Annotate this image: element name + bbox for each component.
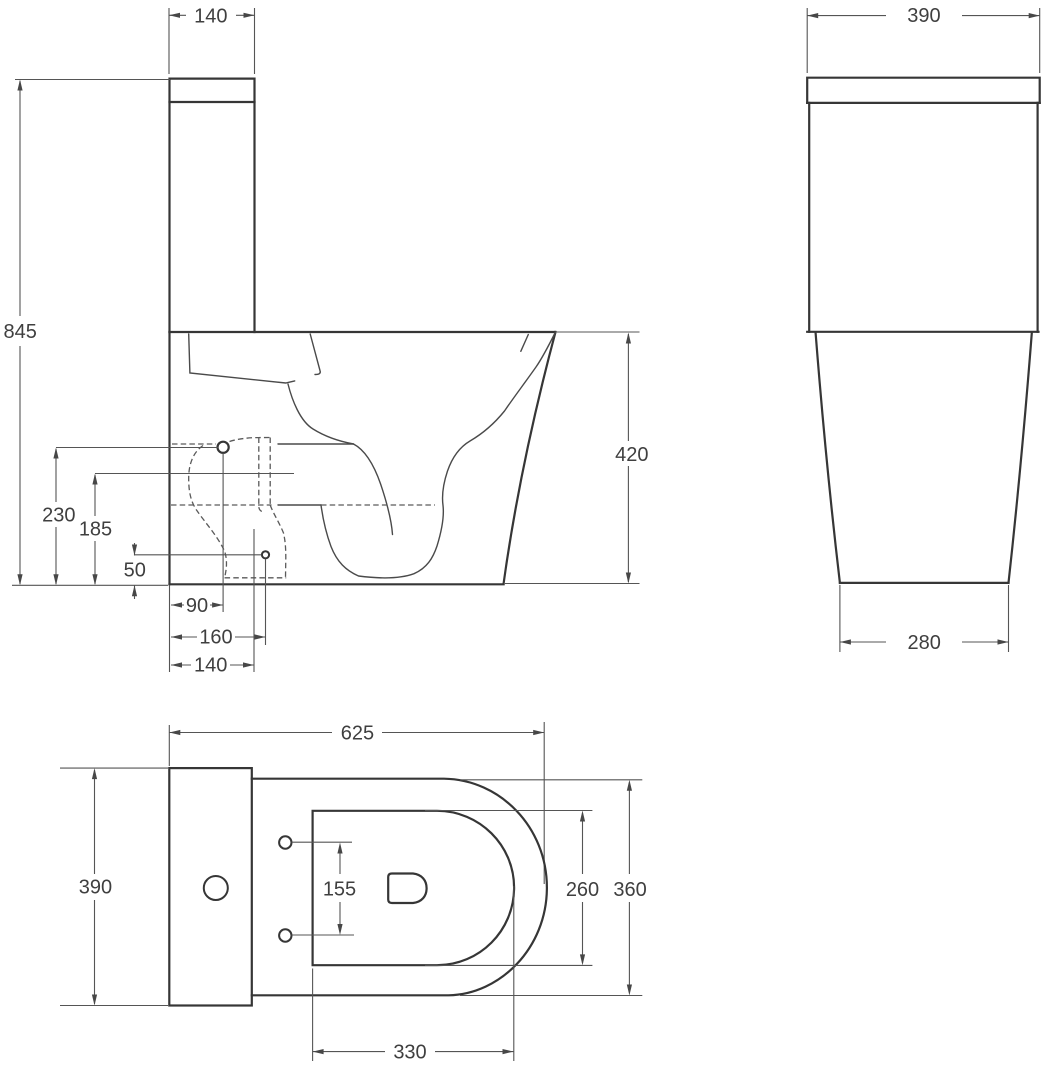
svg-text:390: 390 — [907, 5, 940, 27]
svg-text:420: 420 — [615, 444, 648, 466]
svg-text:845: 845 — [4, 321, 37, 343]
svg-text:90: 90 — [186, 595, 208, 617]
svg-text:260: 260 — [566, 879, 599, 901]
svg-text:360: 360 — [613, 879, 646, 901]
svg-text:330: 330 — [393, 1042, 426, 1064]
svg-text:185: 185 — [79, 519, 112, 541]
svg-text:280: 280 — [908, 632, 941, 654]
svg-text:160: 160 — [199, 627, 232, 649]
svg-text:155: 155 — [323, 878, 356, 900]
svg-text:230: 230 — [42, 505, 75, 527]
svg-text:625: 625 — [341, 723, 374, 745]
svg-text:140: 140 — [194, 655, 227, 677]
svg-text:50: 50 — [124, 560, 146, 582]
svg-text:140: 140 — [194, 5, 227, 27]
svg-text:390: 390 — [79, 877, 112, 899]
